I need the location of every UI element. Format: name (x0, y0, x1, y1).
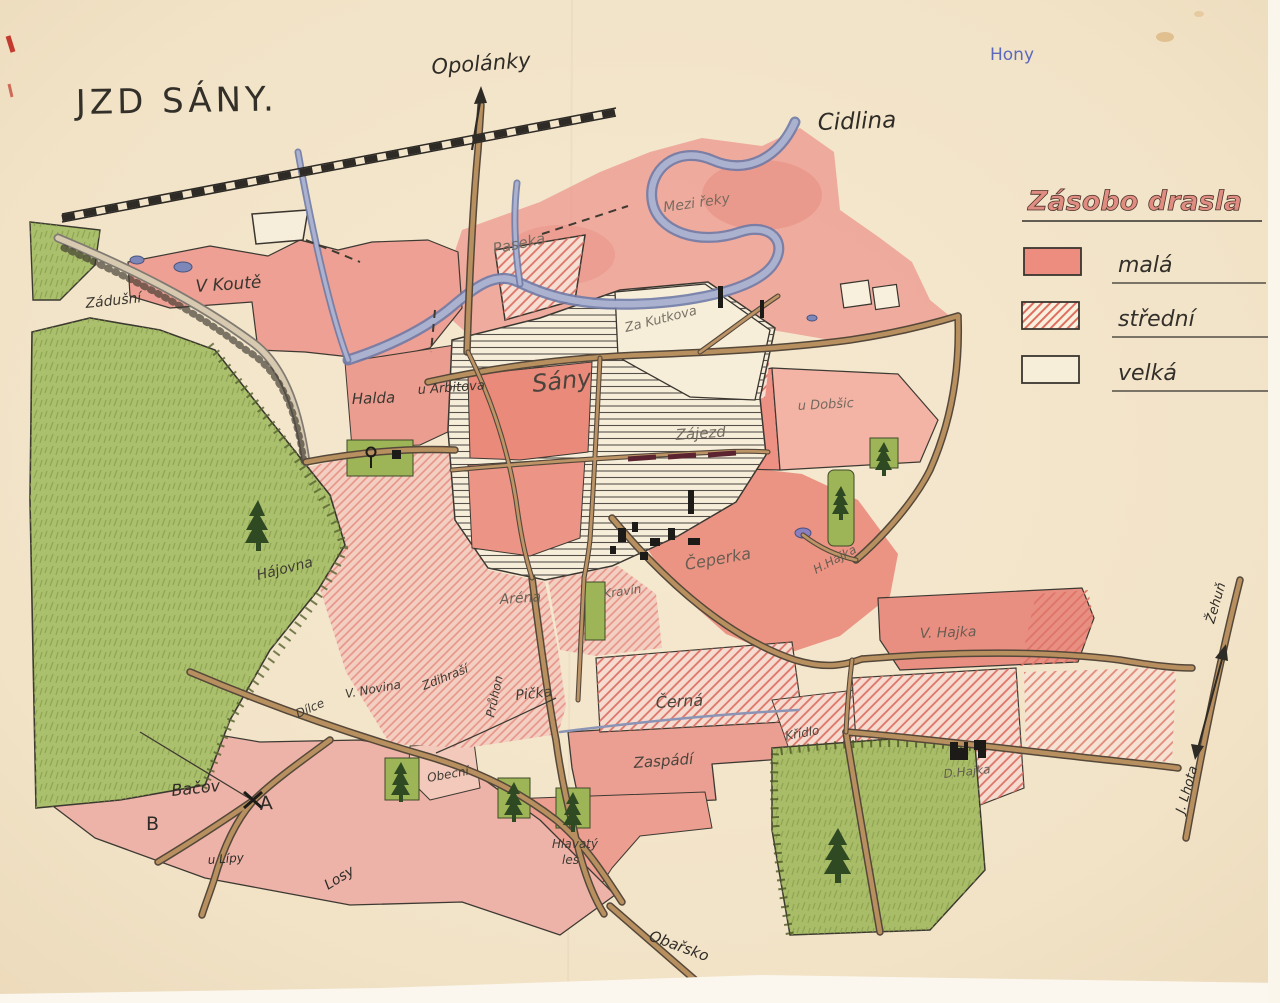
paper-stain (1194, 11, 1204, 17)
white-field (873, 284, 900, 309)
white-field-topleft (252, 210, 308, 244)
legend-label-stredni: střední (1118, 307, 1198, 332)
pond (807, 315, 817, 321)
label-hony: Hony (990, 45, 1034, 65)
map-title: JZD SÁNY. (73, 78, 278, 123)
scan-edge-right (1268, 0, 1280, 1003)
label-cidlina: Cidlina (817, 107, 896, 136)
pond (130, 256, 144, 264)
legend-swatch-stredni (1022, 302, 1079, 329)
label-arena: Aréna (498, 589, 541, 608)
legend-label-velka: velká (1118, 361, 1177, 386)
label-zajezd: Zájezd (674, 422, 727, 444)
map-scan: JZD SÁNY. Opolánky Cidlina Hony Zádušní … (0, 0, 1280, 1003)
label-mark-b: B (146, 813, 159, 835)
white-field (840, 280, 871, 308)
label-u-lipy: u Lípy (207, 850, 245, 867)
label-v-hajka: V. Hajka (920, 624, 977, 642)
legend-title: Zásobo drasla (1027, 186, 1242, 217)
paper-stain (1156, 32, 1174, 42)
label-u-dobsic: u Dobšic (797, 396, 854, 414)
pond (174, 262, 192, 272)
map-svg: JZD SÁNY. Opolánky Cidlina Hony Zádušní … (0, 0, 1280, 1003)
label-halda: Halda (352, 388, 396, 408)
region-east-hatch (1024, 668, 1176, 762)
legend-swatch-velka (1022, 356, 1079, 383)
legend-label-mala: malá (1118, 253, 1173, 278)
label-hlavaty-les-1: Hlavatý (552, 837, 599, 851)
region-cerna (596, 642, 800, 732)
legend-swatch-mala (1024, 248, 1081, 275)
village-red-block-2 (468, 458, 585, 556)
green-plot (347, 440, 413, 476)
label-cerna: Černá (655, 691, 704, 712)
label-mark-a: A (259, 792, 274, 815)
label-hlavaty-les-2: les (562, 853, 579, 867)
